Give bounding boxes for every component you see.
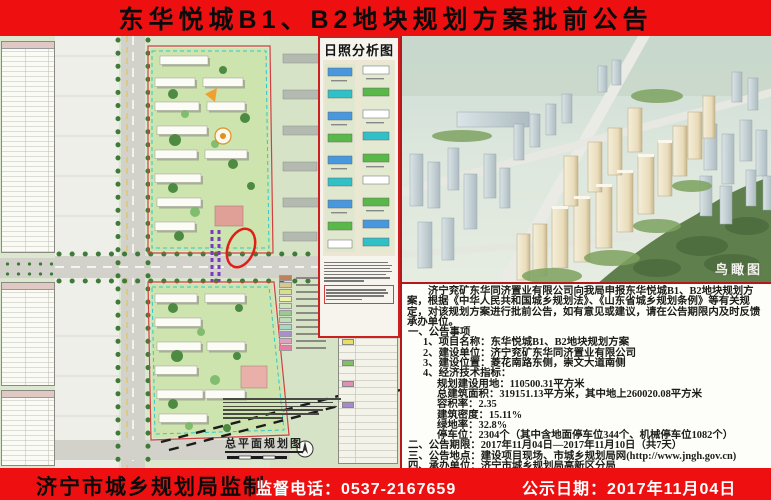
legend-swatch — [279, 289, 292, 295]
aerial-view-label: 鸟瞰图 — [715, 259, 763, 278]
pink-facility-building — [215, 206, 243, 226]
legend-swatch — [279, 317, 292, 323]
issuer-label: 济宁市城乡规划局监制 — [36, 471, 266, 500]
legend-cell — [342, 381, 354, 387]
supervision-phone: 监督电话：0537-2167659 — [256, 475, 456, 499]
legend-swatch — [279, 282, 292, 288]
street-trees — [0, 258, 55, 278]
legend-cell — [342, 402, 354, 408]
legend-swatch — [279, 324, 292, 330]
right-column: 鸟瞰图 济宁兖矿东华同济置业有限公司向我局申报东华悦城B1、B2地块规划方案，根… — [400, 36, 771, 468]
legend-cell — [342, 360, 354, 366]
plan-title-label: 总平面规划图 — [225, 435, 303, 453]
indicator-table-3 — [1, 390, 55, 466]
legend-swatch — [279, 345, 292, 351]
legend-swatch — [279, 331, 292, 337]
legend-cell — [342, 339, 354, 345]
planning-notice-poster: 东华悦城B1、B2地块规划方案批前公告 — [0, 0, 771, 500]
sunshine-conclusion-box — [324, 285, 394, 304]
table-header — [2, 391, 54, 398]
poster-title: 东华悦城B1、B2地块规划方案批前公告 — [119, 0, 653, 36]
sunshine-notes-illegible — [324, 260, 394, 304]
road-strip — [0, 258, 55, 278]
publish-date: 公示日期：2017年11月04日 — [522, 475, 736, 499]
top-banner: 东华悦城B1、B2地块规划方案批前公告 — [0, 0, 771, 36]
plan-symbol-legend-table — [338, 324, 398, 464]
indicator-table-2 — [1, 282, 55, 386]
pink-facility-building — [241, 366, 267, 388]
notice-intro: 济宁兖矿东华同济置业有限公司向我局申报东华悦城B1、B2地块规划方案，根据《中华… — [407, 287, 766, 328]
sunshine-analysis-panel: 日照分析图 — [318, 36, 400, 338]
legend-swatch — [279, 338, 292, 344]
legend-label-illegible — [296, 347, 326, 349]
sunshine-diagram — [323, 60, 395, 256]
indicator-table-1 — [1, 41, 55, 253]
legend-swatch — [279, 310, 292, 316]
scale-bar — [227, 456, 287, 459]
plan-notes-illegible — [223, 398, 343, 421]
bottom-banner: 济宁市城乡规划局监制 监督电话：0537-2167659 公示日期：2017年1… — [0, 468, 771, 500]
legend-swatch — [279, 303, 292, 309]
sunshine-title: 日照分析图 — [320, 38, 398, 59]
table-header — [2, 42, 54, 49]
table-header — [2, 283, 54, 290]
legend-swatch — [279, 275, 292, 281]
left-indicator-tables — [0, 36, 55, 468]
aerial-view: 鸟瞰图 — [402, 36, 771, 284]
aerial-rendering — [402, 36, 771, 284]
notice-text-block: 济宁兖矿东华同济置业有限公司向我局申报东华悦城B1、B2地块规划方案，根据《中华… — [402, 284, 771, 468]
legend-label-illegible — [296, 340, 326, 342]
legend-swatch — [279, 296, 292, 302]
